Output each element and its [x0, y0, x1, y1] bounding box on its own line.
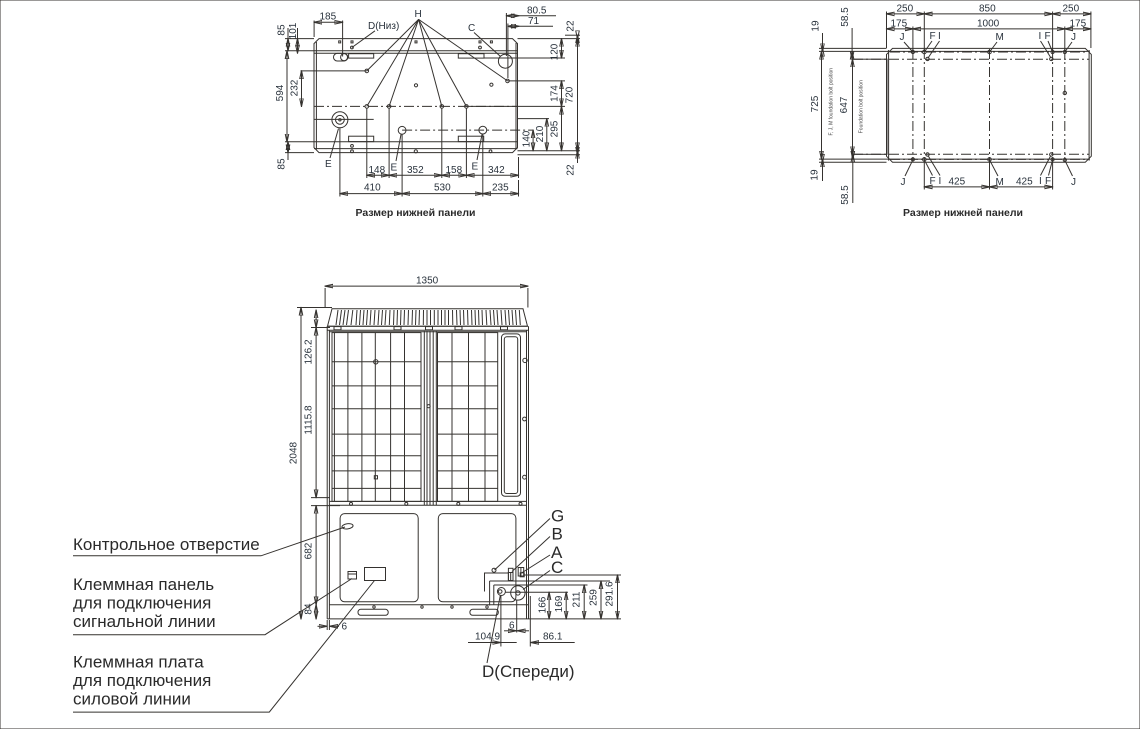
- svg-text:85: 85: [277, 158, 288, 170]
- svg-text:175: 175: [891, 19, 908, 30]
- svg-text:850: 850: [979, 4, 996, 15]
- svg-text:725: 725: [810, 95, 821, 112]
- svg-text:530: 530: [434, 183, 451, 194]
- svg-text:232: 232: [290, 79, 301, 96]
- svg-text:6: 6: [342, 622, 348, 633]
- svg-text:250: 250: [1063, 4, 1080, 15]
- svg-text:G: G: [551, 507, 564, 526]
- svg-text:1000: 1000: [977, 19, 1000, 30]
- svg-text:1350: 1350: [416, 276, 439, 287]
- svg-text:148: 148: [369, 165, 386, 176]
- svg-text:71: 71: [528, 16, 540, 27]
- svg-text:Клеммная панель: Клеммная панель: [73, 575, 214, 594]
- svg-text:J: J: [900, 32, 905, 43]
- svg-text:E: E: [472, 162, 479, 173]
- svg-text:I: I: [939, 176, 942, 187]
- svg-text:80.5: 80.5: [527, 6, 547, 17]
- svg-text:F: F: [1045, 31, 1051, 42]
- svg-text:425: 425: [949, 177, 966, 188]
- svg-text:22: 22: [566, 164, 577, 176]
- svg-text:250: 250: [897, 4, 914, 15]
- svg-text:F: F: [1045, 176, 1051, 187]
- svg-text:140: 140: [522, 130, 533, 147]
- svg-text:для подключения: для подключения: [73, 671, 211, 690]
- svg-text:594: 594: [275, 84, 286, 101]
- svg-text:342: 342: [488, 165, 505, 176]
- svg-text:647: 647: [839, 96, 850, 113]
- svg-text:E: E: [391, 162, 398, 173]
- svg-text:58.5: 58.5: [840, 185, 851, 205]
- svg-text:D(Спереди): D(Спереди): [482, 662, 575, 681]
- svg-text:410: 410: [364, 183, 381, 194]
- svg-text:352: 352: [407, 165, 424, 176]
- svg-text:B: B: [552, 525, 563, 544]
- svg-text:сигнальной линии: сигнальной линии: [73, 612, 216, 631]
- svg-text:Размер нижней панели: Размер нижней панели: [903, 207, 1023, 219]
- svg-text:Foundation bolt position: Foundation bolt position: [859, 80, 865, 133]
- svg-text:F: F: [930, 176, 936, 187]
- svg-text:720: 720: [565, 86, 576, 103]
- svg-text:6: 6: [509, 621, 515, 632]
- svg-text:для подключения: для подключения: [73, 594, 211, 613]
- svg-text:126.2: 126.2: [304, 339, 315, 364]
- svg-text:210: 210: [535, 125, 546, 142]
- svg-text:I: I: [1039, 176, 1042, 187]
- svg-text:J: J: [1071, 177, 1076, 188]
- svg-text:F: F: [930, 31, 936, 42]
- svg-text:E: E: [325, 159, 332, 170]
- svg-text:I: I: [1039, 31, 1042, 42]
- svg-text:101: 101: [288, 22, 299, 39]
- svg-text:J: J: [901, 177, 906, 188]
- svg-text:19: 19: [810, 169, 821, 181]
- svg-text:Контрольное отверстие: Контрольное отверстие: [73, 535, 260, 554]
- svg-text:22: 22: [566, 20, 577, 32]
- svg-text:295: 295: [550, 120, 561, 137]
- svg-text:Размер нижней панели: Размер нижней панели: [355, 207, 475, 219]
- svg-text:Клеммная плата: Клеммная плата: [73, 653, 204, 672]
- svg-text:85: 85: [277, 24, 288, 36]
- svg-text:2048: 2048: [289, 441, 300, 464]
- svg-text:D(Низ): D(Низ): [368, 21, 399, 32]
- svg-text:I: I: [938, 31, 941, 42]
- svg-text:силовой линии: силовой линии: [73, 690, 191, 709]
- svg-text:19: 19: [811, 20, 822, 32]
- svg-text:235: 235: [492, 183, 509, 194]
- svg-text:J: J: [1071, 32, 1076, 43]
- svg-text:C: C: [551, 558, 563, 577]
- svg-text:F, J, M foundation bolt p: F, J, M foundation bolt position: [829, 68, 835, 136]
- svg-text:58.5: 58.5: [840, 7, 851, 27]
- svg-text:104.9: 104.9: [475, 632, 500, 643]
- svg-text:86.1: 86.1: [543, 632, 563, 643]
- svg-text:425: 425: [1016, 177, 1033, 188]
- svg-text:682: 682: [304, 542, 315, 559]
- svg-text:H: H: [415, 9, 422, 20]
- svg-text:174: 174: [550, 85, 561, 102]
- svg-text:158: 158: [446, 165, 463, 176]
- svg-text:120: 120: [550, 43, 561, 60]
- svg-text:185: 185: [320, 12, 337, 23]
- svg-text:M: M: [996, 177, 1004, 188]
- svg-text:166: 166: [538, 596, 549, 613]
- svg-text:175: 175: [1070, 19, 1087, 30]
- svg-text:259: 259: [589, 589, 600, 606]
- svg-text:169: 169: [554, 595, 565, 612]
- svg-text:291.6: 291.6: [605, 581, 616, 606]
- svg-text:M: M: [996, 32, 1004, 43]
- svg-text:211: 211: [572, 591, 583, 607]
- svg-text:1115.8: 1115.8: [304, 405, 315, 435]
